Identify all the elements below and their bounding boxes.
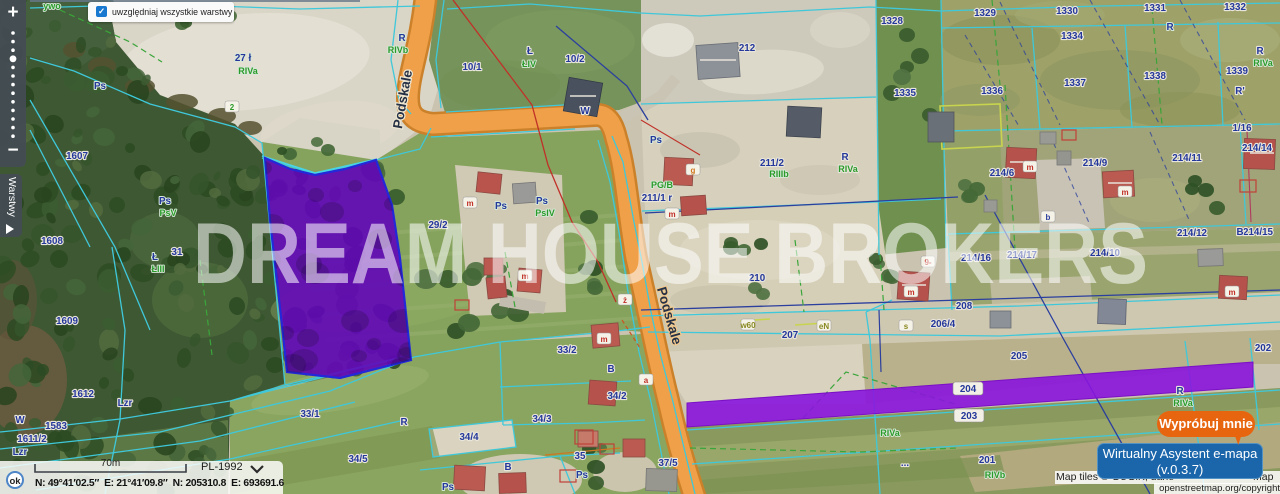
svg-text:PG/B: PG/B [651,180,674,190]
svg-text:1612: 1612 [72,389,94,400]
svg-text:m: m [600,335,607,344]
svg-text:ŁIII: ŁIII [152,264,165,274]
svg-text:Ps: Ps [442,482,455,493]
svg-text:Ł: Ł [152,252,158,263]
svg-text:...: ... [901,458,909,469]
svg-text:RIVa: RIVa [838,164,859,174]
svg-text:R: R [400,417,407,428]
svg-text:m: m [1121,188,1128,197]
svg-text:201: 201 [979,455,996,466]
svg-text:1328: 1328 [881,16,903,27]
svg-text:RIVa: RIVa [238,66,259,76]
svg-text:34/4: 34/4 [459,432,479,443]
svg-text:Ps: Ps [576,470,589,481]
svg-text:1331: 1331 [1144,3,1166,14]
svg-text:B: B [1236,227,1243,238]
svg-text:DREAM HOUSE BROKERS: DREAM HOUSE BROKERS [193,206,1148,302]
svg-text:214/9: 214/9 [1083,158,1108,169]
svg-text:1608: 1608 [41,236,63,247]
svg-text:211/1 r: 211/1 r [642,193,673,204]
svg-text:1335: 1335 [894,88,916,99]
svg-text:R: R [1256,46,1263,57]
svg-text:eN: eN [819,322,829,331]
svg-text:g: g [691,166,696,175]
svg-text:B: B [607,364,614,375]
svg-text:35: 35 [575,451,586,462]
svg-text:1611/2: 1611/2 [17,434,47,445]
svg-text:1336: 1336 [981,86,1003,97]
svg-text:34/5: 34/5 [348,454,368,465]
svg-text:R: R [1176,386,1183,397]
svg-text:205: 205 [1011,351,1028,362]
svg-text:10/1: 10/1 [462,62,482,73]
svg-text:1334: 1334 [1061,31,1083,42]
svg-text:1607: 1607 [66,151,88,162]
svg-text:PsV: PsV [159,208,176,218]
svg-text:R: R [1166,22,1173,33]
svg-text:214/12: 214/12 [1177,228,1208,239]
svg-text:208: 208 [956,301,973,312]
svg-text:202: 202 [1255,343,1272,354]
svg-text:1339: 1339 [1226,66,1248,77]
svg-text:a: a [644,376,649,385]
svg-text:33/2: 33/2 [557,345,577,356]
svg-text:214/14: 214/14 [1242,143,1273,154]
svg-text:RIVb: RIVb [388,45,409,55]
svg-text:2: 2 [230,103,235,112]
svg-text:R': R' [1235,86,1244,97]
svg-text:206/4: 206/4 [931,319,956,330]
svg-text:W: W [15,415,25,426]
svg-text:214/11: 214/11 [1172,153,1202,164]
svg-text:RIVa: RIVa [1253,58,1274,68]
svg-text:Ł: Ł [527,46,533,57]
svg-text:W: W [580,106,590,117]
svg-text:207: 207 [782,330,799,341]
svg-text:RIVb: RIVb [985,470,1006,480]
svg-text:m: m [1026,163,1033,172]
svg-text:B: B [504,462,511,473]
svg-text:1332: 1332 [1224,2,1246,13]
svg-text:Lzr: Lzr [118,398,133,409]
svg-text:1609: 1609 [56,316,78,327]
svg-text:Ps: Ps [650,135,663,146]
svg-text:R: R [398,33,405,44]
svg-text:10/2: 10/2 [565,54,585,65]
svg-text:203: 203 [961,411,978,422]
svg-text:27 ł: 27 ł [235,53,252,64]
svg-text:204: 204 [960,384,977,395]
svg-text:1/16: 1/16 [1232,123,1252,134]
svg-text:1338: 1338 [1144,71,1166,82]
svg-text:34/3: 34/3 [532,414,552,425]
svg-text:214/15: 214/15 [1243,227,1274,238]
svg-text:Ps: Ps [94,81,107,92]
svg-text:R: R [841,152,848,163]
svg-text:34/2: 34/2 [607,391,627,402]
svg-text:37/5: 37/5 [658,458,678,469]
svg-text:1329: 1329 [974,8,996,19]
svg-text:m: m [1228,288,1235,297]
svg-text:RIVa: RIVa [880,428,901,438]
svg-text:Ps: Ps [159,196,172,207]
svg-text:1330: 1330 [1056,6,1078,17]
svg-text:RIVa: RIVa [1173,398,1194,408]
svg-text:33/1: 33/1 [300,409,320,420]
svg-text:1583: 1583 [45,421,67,432]
svg-text:214/6: 214/6 [990,168,1015,179]
svg-text:RIIIb: RIIIb [769,169,789,179]
svg-text:1337: 1337 [1064,78,1086,89]
svg-text:212: 212 [739,43,756,54]
svg-text:ŁIV: ŁIV [522,59,536,69]
svg-text:ywo: ywo [43,1,61,11]
svg-text:w60: w60 [739,321,756,330]
svg-text:31: 31 [172,247,183,258]
svg-text:s: s [904,322,909,331]
svg-text:211/2: 211/2 [760,158,785,169]
